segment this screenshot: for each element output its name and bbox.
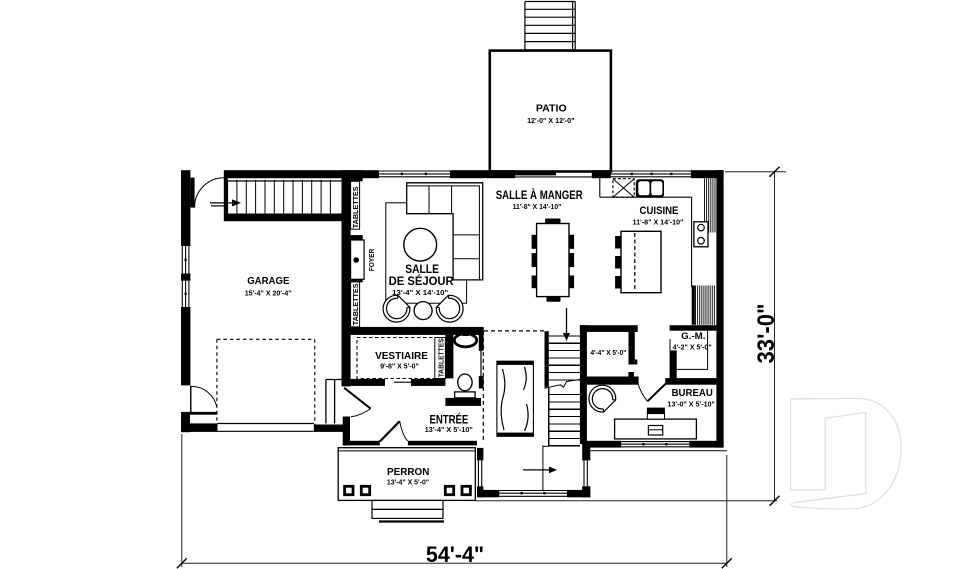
svg-text:4'-4" X 5'-0": 4'-4" X 5'-0": [590, 350, 626, 357]
svg-text:DE SÉJOUR: DE SÉJOUR: [389, 273, 454, 288]
svg-text:GARAGE: GARAGE: [247, 276, 290, 287]
svg-text:33'-0": 33'-0": [753, 304, 780, 364]
svg-text:ENTRÉE: ENTRÉE: [429, 414, 468, 427]
svg-text:VESTIAIRE: VESTIAIRE: [375, 351, 428, 362]
svg-text:12'-0" X 12'-0": 12'-0" X 12'-0": [527, 118, 574, 125]
svg-text:54'-4": 54'-4": [426, 542, 484, 567]
svg-text:SALLE À MANGER: SALLE À MANGER: [496, 189, 583, 202]
svg-text:G.-M.: G.-M.: [681, 331, 705, 341]
svg-text:TABLETTES: TABLETTES: [351, 283, 360, 325]
svg-text:13'-0" X 5'-10": 13'-0" X 5'-10": [667, 401, 715, 408]
svg-text:13'-4" X 5'-10": 13'-4" X 5'-10": [425, 427, 473, 434]
svg-text:13'-4" X 14'-10": 13'-4" X 14'-10": [392, 288, 448, 297]
svg-text:FOYER: FOYER: [367, 248, 376, 271]
svg-text:11'-8" X 14'-10": 11'-8" X 14'-10": [633, 220, 684, 227]
svg-text:BUREAU: BUREAU: [672, 388, 713, 399]
svg-text:TABLETTES: TABLETTES: [351, 186, 360, 228]
svg-text:9'-8" X 5'-0": 9'-8" X 5'-0": [380, 364, 419, 371]
svg-text:15'-4" X 20'-4": 15'-4" X 20'-4": [245, 290, 292, 297]
svg-text:PERRON: PERRON: [387, 467, 429, 478]
svg-text:PATIO: PATIO: [536, 103, 567, 114]
svg-text:TABLETTES: TABLETTES: [437, 338, 446, 377]
svg-text:11'-8" X 14'-10": 11'-8" X 14'-10": [513, 204, 562, 211]
svg-text:CUISINE: CUISINE: [640, 205, 679, 217]
svg-text:13'-4" X 5'-0": 13'-4" X 5'-0": [387, 479, 429, 486]
svg-text:4'-2" X 5'-0": 4'-2" X 5'-0": [673, 344, 712, 351]
